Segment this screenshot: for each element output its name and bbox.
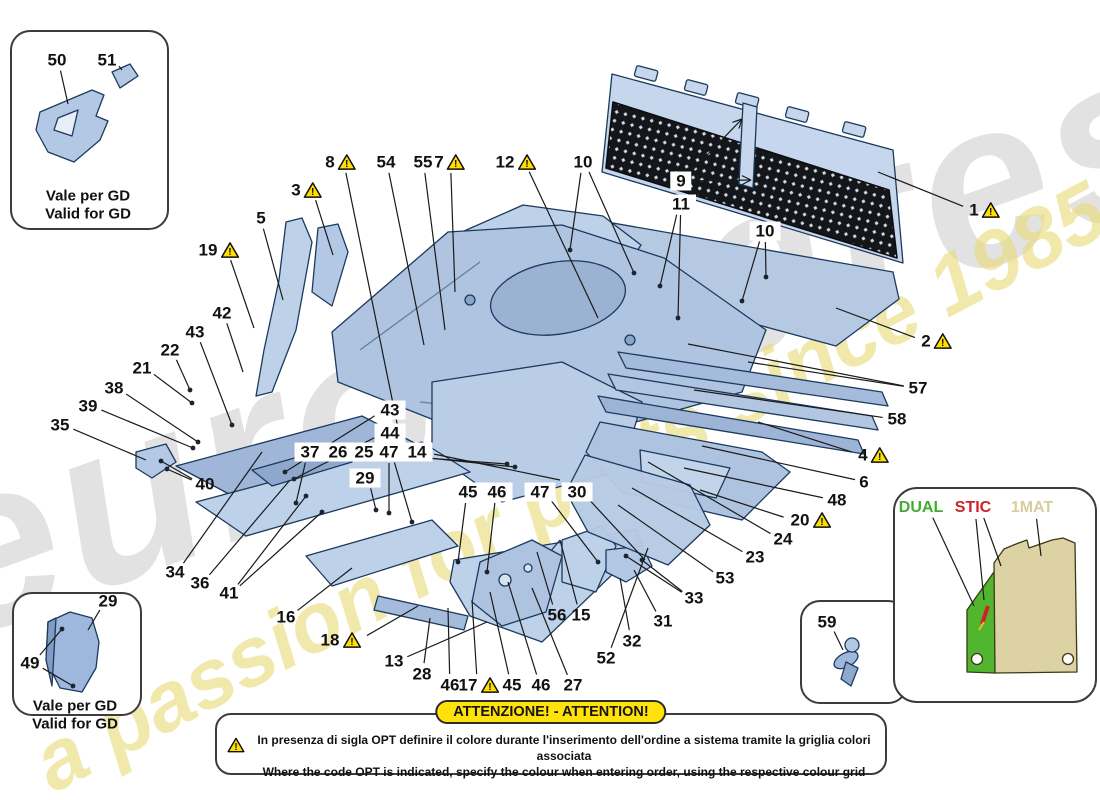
callout-21-52[interactable]: 21 <box>133 360 152 377</box>
warning-triangle-icon: ! <box>338 154 357 171</box>
callout-number: 38 <box>105 380 124 397</box>
callout-47-62[interactable]: 47 <box>374 443 405 462</box>
callout-55-13[interactable]: 55 <box>414 154 433 171</box>
svg-text:!: ! <box>228 247 231 258</box>
caption-vale-per-gd-bottom: Vale per GD <box>33 698 117 715</box>
callout-39-50[interactable]: 39 <box>79 398 98 415</box>
warning-triangle-icon: ! <box>871 447 890 464</box>
callout-number: 52 <box>597 650 616 667</box>
callout-40-56[interactable]: 40 <box>196 476 215 493</box>
warning-triangle-icon: ! <box>934 333 953 350</box>
callout-number: 25 <box>355 444 374 461</box>
callout-1mat-7[interactable]: 1MAT <box>1011 500 1053 516</box>
warning-triangle-icon: ! <box>227 737 245 758</box>
callout-7-14[interactable]: 7! <box>434 154 465 171</box>
callout-number: 51 <box>98 52 117 69</box>
callout-number: 53 <box>716 570 735 587</box>
callout-3-8[interactable]: 3! <box>291 182 322 199</box>
callout-number: 41 <box>220 585 239 602</box>
callout-35-49[interactable]: 35 <box>51 417 70 434</box>
callout-number: 28 <box>413 666 432 683</box>
warning-triangle-icon: ! <box>220 242 239 259</box>
callout-20-27[interactable]: 20! <box>791 512 832 529</box>
callout-number: 26 <box>329 444 348 461</box>
callout-number: 50 <box>48 52 67 69</box>
callout-42-55[interactable]: 42 <box>213 305 232 322</box>
callout-number: 48 <box>828 492 847 509</box>
callout-14-63[interactable]: 14 <box>402 443 433 462</box>
svg-text:!: ! <box>455 159 458 170</box>
callout-47-67[interactable]: 47 <box>525 483 556 502</box>
callout-number: 15 <box>572 607 591 624</box>
callout-52-34[interactable]: 52 <box>597 650 616 667</box>
callout-32-33[interactable]: 32 <box>623 633 642 650</box>
callout-29-2[interactable]: 29 <box>99 593 118 610</box>
svg-text:!: ! <box>879 452 882 463</box>
callout-number: 14 <box>408 444 427 461</box>
callout-10-16[interactable]: 10 <box>574 154 593 171</box>
callout-number: 13 <box>385 653 404 670</box>
callout-19-10[interactable]: 19! <box>199 242 240 259</box>
callout-number: 37 <box>301 444 320 461</box>
callout-number: 46 <box>441 677 460 694</box>
callout-11-18[interactable]: 11 <box>666 195 696 214</box>
callout-46-41[interactable]: 46 <box>441 677 460 694</box>
callout-number: 45 <box>503 677 522 694</box>
warning-triangle-icon: ! <box>982 202 1001 219</box>
callout-number: 12 <box>496 154 515 171</box>
callout-number: 39 <box>79 398 98 415</box>
callout-stic-6[interactable]: STIC <box>955 500 991 516</box>
callout-number: 8 <box>325 154 334 171</box>
svg-text:!: ! <box>346 159 349 170</box>
callout-number: 20 <box>791 512 810 529</box>
svg-text:!: ! <box>820 517 823 528</box>
callout-number: 47 <box>380 444 399 461</box>
callout-51-1[interactable]: 51 <box>98 52 117 69</box>
callout-number: 27 <box>564 677 583 694</box>
callout-37-59[interactable]: 37 <box>295 443 326 462</box>
callout-29-64[interactable]: 29 <box>350 469 381 488</box>
callout-number: 10 <box>574 154 593 171</box>
callout-number: 42 <box>213 305 232 322</box>
callout-number: 59 <box>818 614 837 631</box>
callout-number: 17 <box>459 677 478 694</box>
attention-banner-title: ATTENZIONE! - ATTENTION! <box>435 700 666 724</box>
warning-triangle-icon: ! <box>517 154 536 171</box>
callout-16-45[interactable]: 16 <box>277 609 296 626</box>
callout-number: 30 <box>568 484 587 501</box>
callout-22-53[interactable]: 22 <box>161 342 180 359</box>
callout-number: 34 <box>166 564 185 581</box>
callout-number: 3 <box>291 182 300 199</box>
callout-number: 49 <box>21 655 40 672</box>
callout-41-46[interactable]: 41 <box>220 585 239 602</box>
warning-triangle-icon: ! <box>480 677 499 694</box>
callout-5-9[interactable]: 5 <box>256 210 265 227</box>
callout-46-66[interactable]: 46 <box>482 483 513 502</box>
callout-8-11[interactable]: 8! <box>325 154 356 171</box>
svg-text:!: ! <box>350 637 353 648</box>
callout-number: 21 <box>133 360 152 377</box>
callout-33-31[interactable]: 33 <box>685 590 704 607</box>
callout-number: 10 <box>756 223 775 240</box>
callout-43-54[interactable]: 43 <box>186 324 205 341</box>
warning-triangle-icon: ! <box>812 512 831 529</box>
callout-number: 46 <box>488 484 507 501</box>
callout-number: 9 <box>676 173 685 190</box>
callout-6-25[interactable]: 6 <box>859 474 868 491</box>
callout-number: 40 <box>196 476 215 493</box>
callout-number: 54 <box>377 154 396 171</box>
callout-number: 43 <box>381 402 400 419</box>
callout-number: 18 <box>321 632 340 649</box>
callout-38-51[interactable]: 38 <box>105 380 124 397</box>
attention-banner: ATTENZIONE! - ATTENTION! ! In presenza d… <box>215 713 887 775</box>
svg-text:!: ! <box>312 187 315 198</box>
caption-vale-per-gd-top: Vale per GD <box>46 188 130 205</box>
callout-number: 7 <box>434 154 443 171</box>
warning-triangle-icon: ! <box>447 154 466 171</box>
callout-number: 11 <box>672 196 690 213</box>
callout-number: 57 <box>909 380 928 397</box>
callout-number: 19 <box>199 242 218 259</box>
callout-9-17[interactable]: 9 <box>670 172 691 191</box>
callout-number: 46 <box>532 677 551 694</box>
callout-54-12[interactable]: 54 <box>377 154 396 171</box>
callout-dual-5[interactable]: DUAL <box>899 500 943 516</box>
parts-diagram-page: eurospares a passion for parts since 198… <box>0 0 1100 800</box>
callout-56-36[interactable]: 56 <box>548 607 567 624</box>
callout-number: 2 <box>921 333 930 350</box>
callout-number: 1MAT <box>1011 500 1053 516</box>
svg-text:!: ! <box>525 159 528 170</box>
callout-number: STIC <box>955 500 991 516</box>
callout-number: 44 <box>381 425 400 442</box>
callout-number: 36 <box>191 575 210 592</box>
callout-number: 58 <box>888 411 907 428</box>
callout-number: 55 <box>414 154 433 171</box>
callout-number: 32 <box>623 633 642 650</box>
callout-number: DUAL <box>899 500 943 516</box>
svg-text:!: ! <box>942 338 945 349</box>
callout-34-48[interactable]: 34 <box>166 564 185 581</box>
callout-28-42[interactable]: 28 <box>413 666 432 683</box>
svg-text:!: ! <box>488 682 491 693</box>
callout-48-26[interactable]: 48 <box>828 492 847 509</box>
attention-banner-text: In presenza di sigla OPT definire il col… <box>251 732 877 781</box>
svg-text:!: ! <box>234 742 237 753</box>
callout-number: 22 <box>161 342 180 359</box>
callout-number: 35 <box>51 417 70 434</box>
callout-15-35[interactable]: 15 <box>572 607 591 624</box>
callout-number: 23 <box>746 549 765 566</box>
callout-number: 43 <box>186 324 205 341</box>
callout-10-19[interactable]: 10 <box>750 222 781 241</box>
attention-line-italian: In presenza di sigla OPT definire il col… <box>251 732 877 764</box>
callout-number: 33 <box>685 590 704 607</box>
callout-46-38[interactable]: 46 <box>532 677 551 694</box>
svg-text:!: ! <box>990 207 993 218</box>
caption-valid-for-gd-top: Valid for GD <box>45 206 131 223</box>
callout-18-44[interactable]: 18! <box>321 632 362 649</box>
callout-31-32[interactable]: 31 <box>654 613 673 630</box>
callout-36-47[interactable]: 36 <box>191 575 210 592</box>
callout-17-40[interactable]: 17! <box>459 677 500 694</box>
callout-49-3[interactable]: 49 <box>21 655 40 672</box>
callout-43-57[interactable]: 43 <box>375 401 406 420</box>
callout-12-15[interactable]: 12! <box>496 154 537 171</box>
callout-44-58[interactable]: 44 <box>375 424 406 443</box>
callout-number: 29 <box>99 593 118 610</box>
callout-45-39[interactable]: 45 <box>503 677 522 694</box>
callout-45-65[interactable]: 45 <box>453 483 484 502</box>
callout-number: 45 <box>459 484 478 501</box>
callout-number: 29 <box>356 470 375 487</box>
callout-57-22[interactable]: 57 <box>909 380 928 397</box>
callout-number: 56 <box>548 607 567 624</box>
callout-number: 1 <box>969 202 978 219</box>
callout-53-30[interactable]: 53 <box>716 570 735 587</box>
callout-4-24[interactable]: 4! <box>858 447 889 464</box>
caption-valid-for-gd-bottom: Valid for GD <box>32 716 118 733</box>
callout-1-20[interactable]: 1! <box>969 202 1000 219</box>
callout-number: 4 <box>858 447 867 464</box>
callout-27-37[interactable]: 27 <box>564 677 583 694</box>
callout-2-21[interactable]: 2! <box>921 333 952 350</box>
callout-59-4[interactable]: 59 <box>818 614 837 631</box>
callout-23-29[interactable]: 23 <box>746 549 765 566</box>
warning-triangle-icon: ! <box>342 632 361 649</box>
callout-number: 24 <box>774 531 793 548</box>
callout-number: 31 <box>654 613 673 630</box>
callout-number: 16 <box>277 609 296 626</box>
warning-triangle-icon: ! <box>304 182 323 199</box>
callout-50-0[interactable]: 50 <box>48 52 67 69</box>
callout-24-28[interactable]: 24 <box>774 531 793 548</box>
callout-58-23[interactable]: 58 <box>888 411 907 428</box>
callout-number: 5 <box>256 210 265 227</box>
callout-number: 6 <box>859 474 868 491</box>
callout-number: 47 <box>531 484 550 501</box>
attention-line-english: Where the code OPT is indicated, specify… <box>251 764 877 780</box>
callout-30-68[interactable]: 30 <box>562 483 593 502</box>
callout-13-43[interactable]: 13 <box>385 653 404 670</box>
